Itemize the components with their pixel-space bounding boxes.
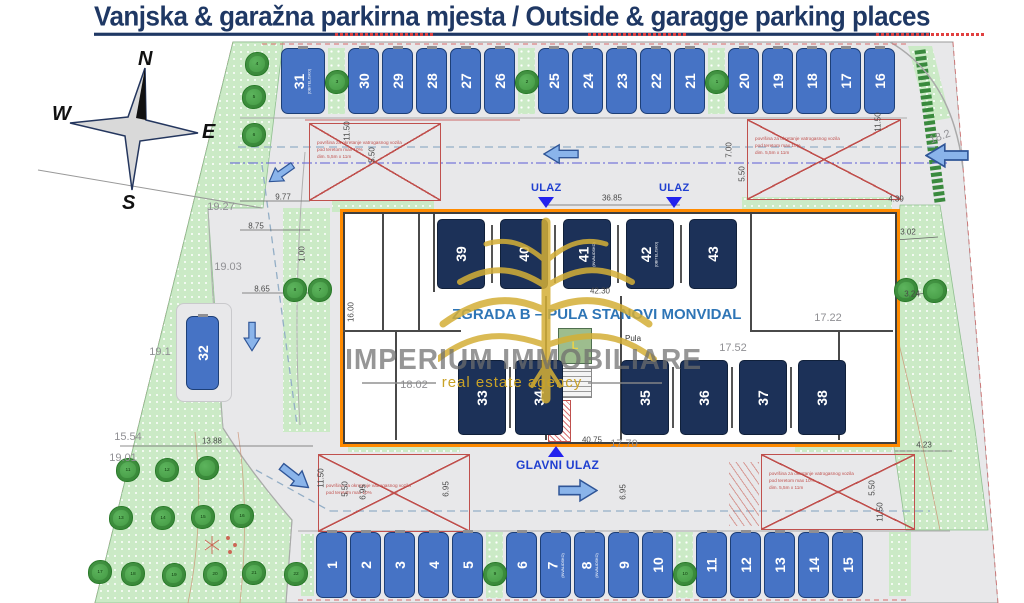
tree-icon: 1	[705, 70, 729, 94]
parking-space-number: 29	[390, 73, 404, 89]
parking-space-18: 18	[796, 48, 827, 114]
parking-space-number: 5	[460, 561, 474, 569]
watermark-line	[588, 382, 662, 384]
parking-space-1: 1	[316, 532, 347, 598]
parking-space-26: 26	[484, 48, 515, 114]
row-green-gap: 2	[518, 48, 535, 114]
rotated-label: 29	[390, 73, 404, 89]
rotated-label: 2	[358, 561, 372, 569]
direction-arrow-icon	[925, 142, 969, 169]
tree-icon: 20	[203, 562, 227, 586]
spellcheck-underline	[876, 33, 984, 36]
tree-number: 8	[285, 280, 304, 299]
parking-space-10: 10	[642, 532, 673, 598]
fire-area-note: površina za okretanje vatrogasnog vozila…	[755, 136, 840, 157]
entrance-arrow-icon	[538, 197, 554, 208]
tree-number: 2	[517, 72, 536, 91]
spellcheck-underline	[588, 33, 688, 36]
parking-space-number: 15	[840, 557, 854, 573]
dimension-label: 8.65	[254, 285, 270, 294]
tree-icon: 18	[121, 562, 145, 586]
main-entrance-label: GLAVNI ULAZ	[516, 458, 599, 472]
tree-icon: 16	[230, 504, 254, 528]
parking-space-number: 10	[650, 557, 664, 573]
tree-number: 7	[310, 280, 329, 299]
tree-icon: 19	[162, 563, 186, 587]
parking-space-30: 30	[348, 48, 379, 114]
row-green-gap: 9	[486, 532, 503, 598]
parking-space-number: 3	[392, 561, 406, 569]
parking-space-7: 7(INVALIDSKO)	[540, 532, 571, 598]
rotated-label: 37	[756, 390, 770, 406]
parking-space-number: 13	[772, 557, 786, 573]
parking-space-number: 36	[697, 390, 711, 406]
rotated-label: 25	[546, 73, 560, 89]
dimension-label: 11.50	[876, 502, 885, 521]
tree-icon: 5	[242, 85, 266, 109]
tree-number: 12	[157, 460, 176, 479]
dimension-label: 5.50	[341, 481, 350, 497]
parking-space-type-label: (OBITELJSKO)	[309, 68, 313, 93]
parking-space-11: 11	[696, 532, 727, 598]
fire-truck-area: površina za okretanje vatrogasnog vozila…	[761, 454, 915, 530]
parking-space-8: 8(INVALIDSKO)	[574, 532, 605, 598]
tree-number: 6	[244, 125, 263, 144]
parking-space-number: 32	[195, 345, 209, 361]
parking-space-19: 19	[762, 48, 793, 114]
parking-space-38: 38	[798, 360, 846, 435]
parking-space-27: 27	[450, 48, 481, 114]
green-strip	[889, 532, 911, 596]
tree-number: 22	[286, 564, 305, 583]
dimension-label: 5.50	[738, 166, 747, 182]
tree-number: 10	[675, 564, 694, 583]
dimension-label: 4.23	[916, 441, 932, 450]
interior-wall	[382, 214, 384, 330]
rotated-label: 16	[872, 73, 886, 89]
dimension-label: 6.95	[619, 484, 628, 500]
title-bar: Vanjska & garažna parkirna mjesta / Outs…	[0, 1, 1024, 35]
hatched-area	[729, 462, 759, 526]
parking-space-type-label: (INVALIDSKO)	[595, 553, 599, 578]
main-entrance-arrow-icon	[548, 446, 564, 457]
dimension-label: 13.88	[202, 437, 222, 446]
site-plan: Vanjska & garažna parkirna mjesta / Outs…	[0, 0, 1024, 603]
parking-space-number: 21	[682, 73, 696, 89]
rotated-label: 26	[492, 73, 506, 89]
dimension-label: 17.52	[719, 342, 747, 354]
dimension-label: 11.50	[874, 112, 883, 131]
parking-space-number: 9	[616, 561, 630, 569]
rotated-label: 31(OBITELJSKO)	[292, 60, 313, 101]
fire-area-note: površina za okretanje vatrogasnog vozila…	[317, 140, 402, 161]
tree-icon: 7	[308, 278, 332, 302]
tree-number: 16	[232, 506, 251, 525]
parking-space-number: 24	[580, 73, 594, 89]
tree-icon: 22	[284, 562, 308, 586]
rotated-label: 27	[458, 73, 472, 89]
rotated-label: 38	[815, 390, 829, 406]
tree-icon: 2	[515, 70, 539, 94]
compass-north-label: N	[138, 48, 152, 71]
tree-number: 18	[123, 564, 142, 583]
rotated-label: 28	[424, 73, 438, 89]
tree-icon: 3	[325, 70, 349, 94]
parking-space-number: 17	[838, 73, 852, 89]
rotated-label: 18	[804, 73, 818, 89]
dimension-label: 3.02	[900, 228, 916, 237]
parking-space-22: 22	[640, 48, 671, 114]
dimension-label: 6.95	[359, 484, 368, 500]
dimension-label: 18.02	[400, 379, 428, 391]
direction-arrow-icon	[558, 478, 598, 503]
direction-arrow-icon	[243, 321, 262, 351]
rotated-label: 9	[616, 561, 630, 569]
rotated-label: 12	[738, 557, 752, 573]
tree-number: 9	[485, 564, 504, 583]
rotated-label: 43	[706, 246, 720, 262]
tree-icon: 13	[109, 506, 133, 530]
parking-space-number: 12	[738, 557, 752, 573]
dimension-label: 19.1	[149, 346, 170, 358]
watermark-agency-name: IMPERIUM IMMOBILIARE	[345, 344, 675, 377]
parking-space-32: 32	[186, 316, 219, 390]
parking-space-number: 38	[815, 390, 829, 406]
tree-number: 19	[164, 565, 183, 584]
watermark-line	[362, 382, 436, 384]
row-green-gap: 3	[328, 48, 345, 114]
watermark-agency-tagline: real estate agency	[436, 374, 588, 391]
tree-number: 20	[205, 564, 224, 583]
green-strip-building-west	[283, 208, 330, 432]
tree-number: 3	[327, 72, 346, 91]
dimension-label: 9.77	[275, 193, 291, 202]
tree-number: 21	[244, 563, 263, 582]
parking-space-number: 8	[579, 561, 593, 569]
entrance-arrow-icon	[666, 197, 682, 208]
rotated-label: 1	[324, 561, 338, 569]
tree-icon: 21	[242, 561, 266, 585]
parking-space-3: 3	[384, 532, 415, 598]
outdoor-parking-row-bottom: 12345967(INVALIDSKO)8(INVALIDSKO)9101011…	[316, 532, 863, 598]
rotated-label: 11	[705, 558, 719, 573]
tree-number: 4	[247, 54, 266, 73]
tree-number: 17	[90, 562, 109, 581]
tree-icon: 10	[673, 562, 697, 586]
parking-space-6: 6	[506, 532, 537, 598]
parking-space-28: 28	[416, 48, 447, 114]
parking-space-number: 6	[514, 561, 528, 569]
tree-number: 14	[153, 508, 172, 527]
parking-space-2: 2	[350, 532, 381, 598]
parking-space-29: 29	[382, 48, 413, 114]
tree-icon	[195, 456, 219, 480]
rotated-label: 5	[460, 561, 474, 569]
parking-space-43: 43	[689, 219, 737, 289]
parking-space-13: 13	[764, 532, 795, 598]
tree-number: 15	[193, 507, 212, 526]
dimension-label: 5.50	[368, 147, 377, 163]
parking-space-number: 20	[736, 73, 750, 89]
rotated-label: 6	[514, 561, 528, 569]
parking-space-number: 2	[358, 561, 372, 569]
rotated-label: 23	[614, 73, 628, 89]
parking-space-37: 37	[739, 360, 787, 435]
tree-icon: 17	[88, 560, 112, 584]
parking-space-16: 16	[864, 48, 895, 114]
interior-wall	[418, 214, 420, 330]
parking-space-12: 12	[730, 532, 761, 598]
entrance-label-ulaz-2: ULAZ	[659, 182, 690, 194]
rotated-label: 24	[580, 73, 594, 89]
parking-space-17: 17	[830, 48, 861, 114]
tree-number	[197, 458, 216, 477]
parking-space-number: 23	[614, 73, 628, 89]
rotated-label: 10	[650, 557, 664, 573]
tree-icon: 14	[151, 506, 175, 530]
tree-number: 13	[111, 508, 130, 527]
dimension-label: 19.03	[214, 261, 242, 273]
dimension-label: 4.39	[888, 195, 904, 204]
rotated-label: 3	[392, 561, 406, 569]
dimension-label: 15.54	[114, 431, 142, 443]
rotated-label: 19	[770, 73, 784, 89]
interior-wall	[433, 214, 435, 292]
parking-space-14: 14	[798, 532, 829, 598]
parking-space-number: 27	[458, 73, 472, 89]
rotated-label: 30	[356, 73, 370, 89]
compass-west-label: W	[52, 103, 71, 126]
compass-east-label: E	[202, 121, 215, 144]
rotated-label: 8(INVALIDSKO)	[579, 545, 600, 585]
parking-space-number: 7	[545, 561, 559, 569]
dimension-label: 17.70	[610, 438, 638, 450]
parking-space-number: 31	[292, 73, 306, 89]
parking-space-number: 37	[756, 390, 770, 406]
spellcheck-underline	[335, 33, 435, 36]
fire-area-note: površina za okretanje vatrogasnog vozila…	[326, 483, 411, 497]
parking-space-number: 25	[546, 73, 560, 89]
dimension-label: 40.75	[582, 436, 602, 445]
parking-space-number: 26	[492, 73, 506, 89]
parking-space-23: 23	[606, 48, 637, 114]
dimension-label: 6.95	[442, 481, 451, 497]
parking-space-number: 43	[706, 246, 720, 262]
parking-space-24: 24	[572, 48, 603, 114]
tree-icon: 12	[155, 458, 179, 482]
dimension-label: 11.50	[343, 121, 352, 140]
parking-space-number: 18	[804, 73, 818, 89]
tree-icon: 9	[483, 562, 507, 586]
parking-space-type-label: (INVALIDSKO)	[561, 553, 565, 578]
dimension-label: 1.00	[298, 246, 307, 262]
rotated-label: 4	[426, 561, 440, 569]
direction-arrow-icon	[543, 143, 579, 165]
parking-space-20: 20	[728, 48, 759, 114]
rotated-label: 17	[838, 73, 852, 89]
tree-number: 5	[244, 87, 263, 106]
parking-space-number: 22	[648, 73, 662, 89]
tree-number	[925, 281, 944, 300]
parking-space-number: 1	[324, 561, 338, 569]
dimension-label: 19.27	[207, 201, 235, 213]
rotated-label: 15	[840, 557, 854, 573]
dimension-label: 8.75	[248, 222, 264, 231]
parking-space-5: 5	[452, 532, 483, 598]
parking-space-25: 25	[538, 48, 569, 114]
dimension-label: 11.50	[317, 468, 326, 487]
parking-space-number: 30	[356, 73, 370, 89]
rotated-label: 13	[772, 557, 786, 573]
rotated-label: 36	[697, 390, 711, 406]
outdoor-parking-row-top: 31(OBITELJSKO)33029282726225242322211201…	[281, 48, 895, 114]
tree-icon	[923, 279, 947, 303]
dimension-label: 3.24	[904, 290, 920, 299]
rotated-label: 22	[648, 73, 662, 89]
parking-space-21: 21	[674, 48, 705, 114]
parking-space-4: 4	[418, 532, 449, 598]
tree-icon: 6	[242, 123, 266, 147]
dimension-label: 17.22	[814, 312, 842, 324]
parking-space-number: 19	[770, 73, 784, 89]
dimension-label: 7.00	[725, 142, 734, 158]
green-strip	[332, 200, 434, 212]
row-green-gap: 10	[676, 532, 693, 598]
parking-space-31: 31(OBITELJSKO)	[281, 48, 325, 114]
interior-wall	[750, 330, 893, 332]
parking-space-number: 4	[426, 561, 440, 569]
fire-area-note: površina za okretanje vatrogasnog vozila…	[769, 471, 854, 492]
parking-space-number: 16	[872, 73, 886, 89]
parking-space-9: 9	[608, 532, 639, 598]
rotated-label: 14	[806, 557, 820, 573]
rotated-label: 7(INVALIDSKO)	[545, 545, 566, 585]
dimension-label: 5.50	[868, 480, 877, 496]
dimension-label: 19.01	[109, 452, 137, 464]
row-green-gap: 1	[708, 48, 725, 114]
page-title: Vanjska & garažna parkirna mjesta / Outs…	[94, 0, 930, 36]
entrance-label-ulaz-1: ULAZ	[531, 182, 562, 194]
rotated-label: 21	[682, 73, 696, 89]
parking-space-15: 15	[832, 532, 863, 598]
tree-icon: 4	[245, 52, 269, 76]
parking-space-number: 14	[806, 557, 820, 573]
parking-space-number: 11	[705, 558, 719, 573]
dimension-label: 36.85	[602, 194, 622, 203]
compass-south-label: S	[122, 192, 135, 215]
parking-space-number: 28	[424, 73, 438, 89]
rotated-label: 20	[736, 73, 750, 89]
dimension-label: 16.00	[347, 302, 356, 322]
tree-number: 1	[707, 72, 726, 91]
tree-icon: 15	[191, 505, 215, 529]
tree-icon: 8	[283, 278, 307, 302]
